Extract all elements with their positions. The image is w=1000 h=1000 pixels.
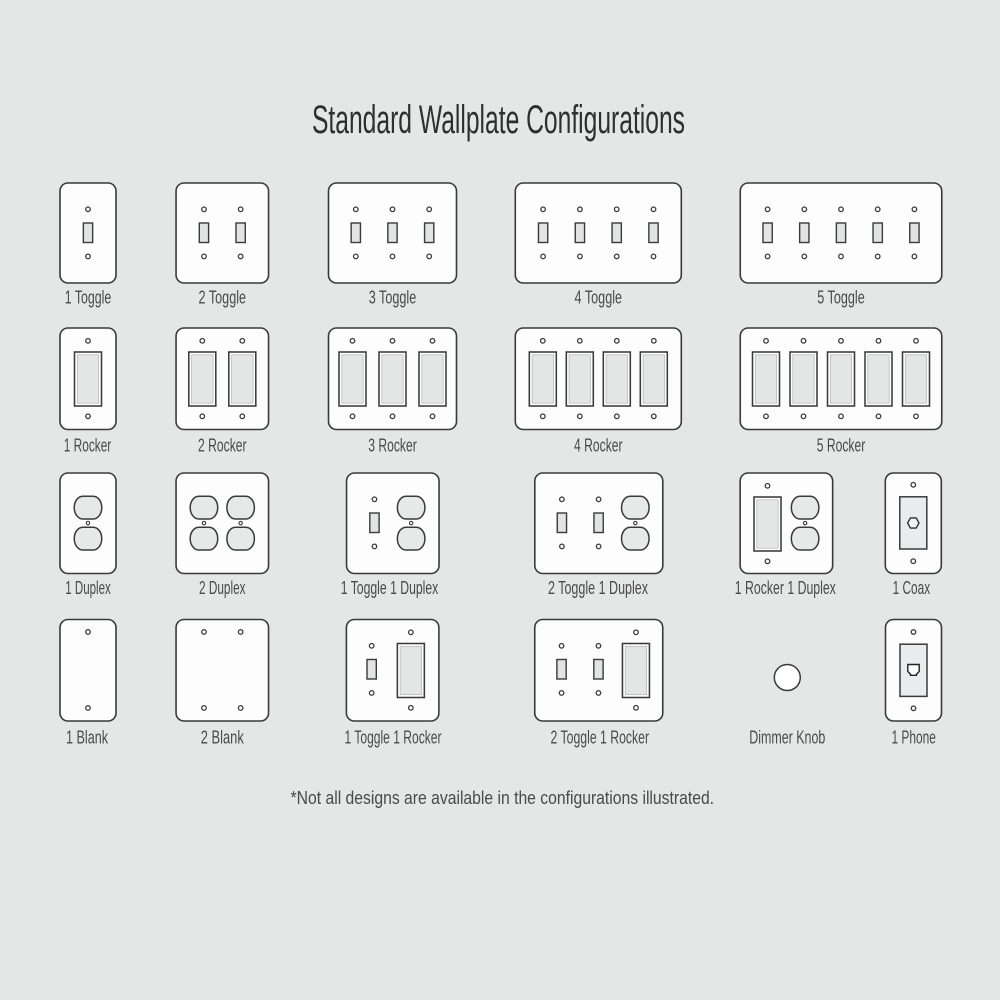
svg-text:Dimmer Knob: Dimmer Knob xyxy=(749,727,825,747)
svg-text:5 Toggle: 5 Toggle xyxy=(817,287,865,307)
svg-text:1 Blank: 1 Blank xyxy=(66,727,109,747)
svg-text:2 Toggle 1 Duplex: 2 Toggle 1 Duplex xyxy=(548,578,648,598)
svg-text:1 Phone: 1 Phone xyxy=(891,727,936,747)
svg-text:4 Toggle: 4 Toggle xyxy=(575,287,623,307)
svg-text:1 Rocker: 1 Rocker xyxy=(64,435,112,455)
svg-text:2 Rocker: 2 Rocker xyxy=(198,435,247,455)
svg-text:1 Duplex: 1 Duplex xyxy=(65,578,111,598)
svg-text:1 Rocker 1 Duplex: 1 Rocker 1 Duplex xyxy=(735,578,836,598)
svg-text:3 Toggle: 3 Toggle xyxy=(369,287,417,307)
svg-text:2 Duplex: 2 Duplex xyxy=(199,578,246,598)
svg-text:1 Coax: 1 Coax xyxy=(893,578,931,598)
svg-text:1 Toggle 1 Duplex: 1 Toggle 1 Duplex xyxy=(341,578,439,598)
svg-text:2 Blank: 2 Blank xyxy=(201,727,245,747)
svg-text:3 Rocker: 3 Rocker xyxy=(368,435,417,455)
svg-text:5 Rocker: 5 Rocker xyxy=(817,435,866,455)
svg-text:Standard Wallplate Configurati: Standard Wallplate Configurations xyxy=(312,98,685,142)
svg-text:1 Toggle: 1 Toggle xyxy=(65,287,112,307)
svg-text:4 Rocker: 4 Rocker xyxy=(574,435,623,455)
svg-text:2 Toggle: 2 Toggle xyxy=(199,287,247,307)
svg-text:1 Toggle 1 Rocker: 1 Toggle 1 Rocker xyxy=(345,727,442,747)
svg-text:*Not all designs are available: *Not all designs are available in the co… xyxy=(291,787,715,808)
svg-text:2 Toggle 1 Rocker: 2 Toggle 1 Rocker xyxy=(551,727,650,747)
